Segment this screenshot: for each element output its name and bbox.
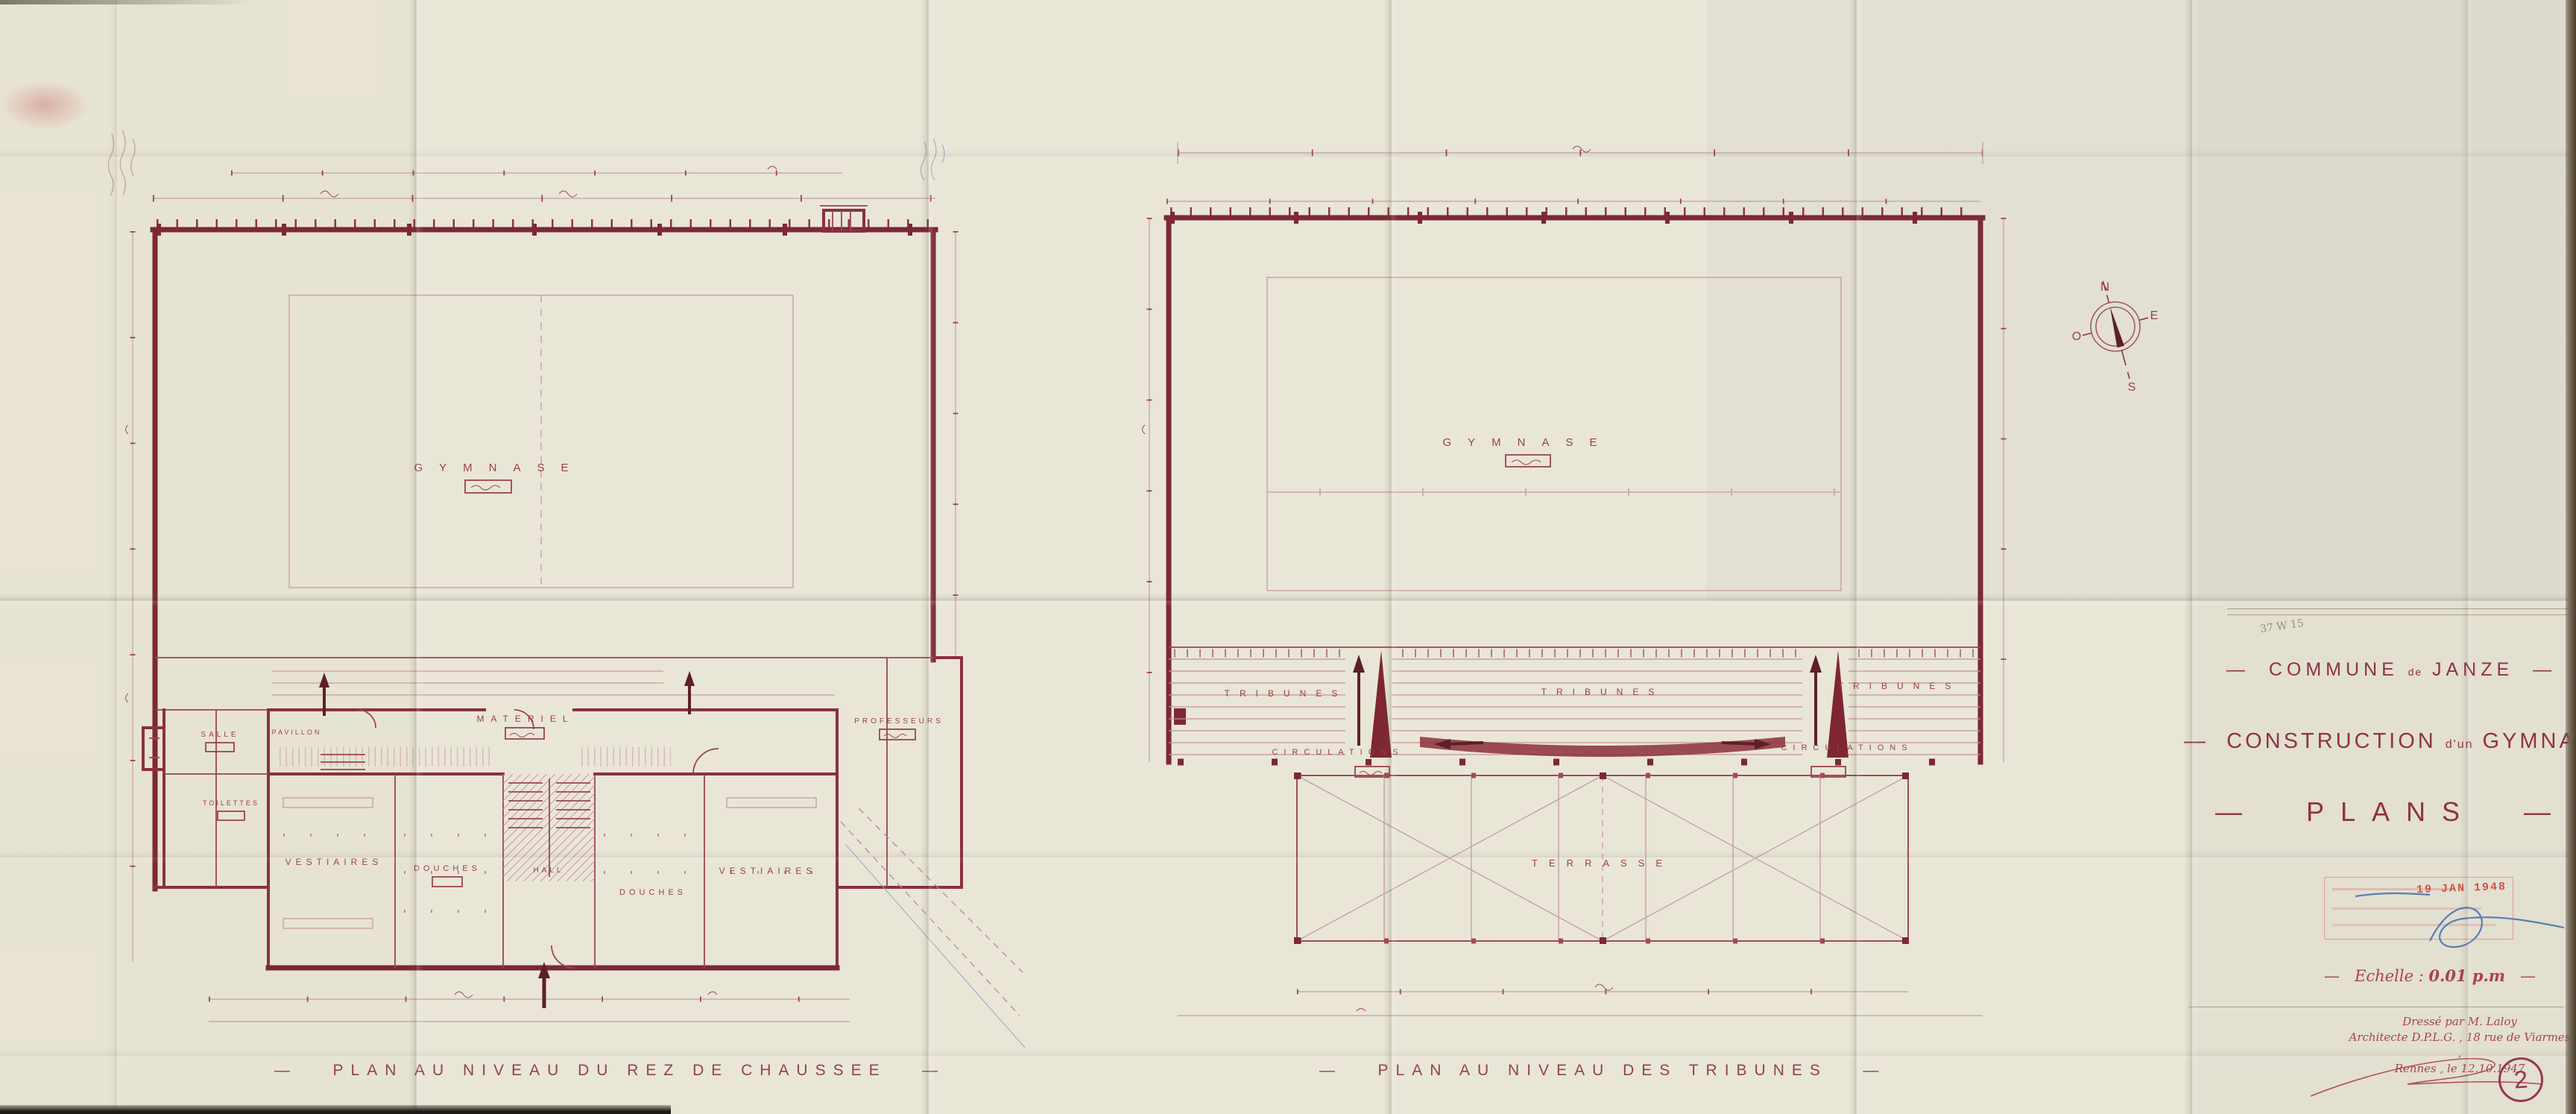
trib-label-tribunes-l: TRIBUNES [1225,688,1348,699]
credit-line-1: Dressé par M. Laloy [2348,1014,2572,1030]
titleblock-sheet-title: — PLANS — [2206,796,2576,828]
trib-label-circulations-r: CIRCULATIONS [1781,743,1913,752]
project-name: GYMNASE [2483,729,2576,753]
caption-dash-left: — [1319,1062,1342,1079]
dash: — [2215,796,2258,827]
rdc-label-salle: SALLE [201,731,239,739]
titleblock-divider [2188,1007,2564,1007]
compass-west-label: O [2072,330,2081,343]
dash: — [2184,729,2209,753]
drawing-sheet: GYMNASE MATERIEL PROFESSEURS VESTIAIRES … [0,0,2576,1114]
compass-rose: N E S O [2050,261,2199,410]
caption-plan-rdc: — PLAN AU NIVEAU DU REZ DE CHAUSSEE — [274,1062,796,1080]
dash: — [2520,967,2536,985]
rdc-label-gymnase: GYMNASE [414,462,584,474]
rdc-note-blue [921,139,944,180]
rdc-label-pavillon: PAVILLON [272,728,322,736]
sheet-title-text: PLANS [2306,796,2476,827]
rdc-exterior-ramp [841,808,1025,1048]
rdc-court [289,295,793,588]
rdc-label-douches-l: DOUCHES [414,864,481,873]
trib-gym-below: GYMNASE [1267,277,1841,591]
project-word: CONSTRUCTION [2226,729,2437,753]
dash: — [2226,659,2250,680]
rdc-label-hall: HALL [533,866,563,875]
rdc-label-vestiaires-l: VESTIAIRES [285,857,383,867]
trib-label-gymnase: GYMNASE [1442,436,1613,449]
caption-dash-right: — [1863,1062,1886,1079]
trib-stairs [1345,649,1849,777]
caption-rdc-text: PLAN AU NIVEAU DU REZ DE CHAUSSEE [333,1062,887,1079]
caption-plan-tribunes: — PLAN AU NIVEAU DES TRIBUNES — [1319,1062,1849,1080]
trib-label-terrasse: TERRASSE [1532,857,1673,869]
trib-terrasse: TERRASSE [1294,772,1909,944]
rdc-dimension-chains [126,166,956,1022]
rdc-label-materiel: MATERIEL [476,714,574,724]
compass-south-label: S [2128,381,2136,394]
caption-tribunes-text: PLAN AU NIVEAU DES TRIBUNES [1378,1062,1828,1079]
archive-reference: 37 W 15 [2259,617,2305,635]
dash: — [2524,796,2567,827]
commune-name: JANZE [2432,659,2513,680]
trib-dimension-chains [1143,142,2004,1016]
scale-value: 0.01 p.m [2428,966,2505,985]
titleblock-project-line: — CONSTRUCTION d'un GYMNASE — [2184,729,2576,754]
blue-signature [2340,880,2576,977]
dash: — [2324,967,2340,985]
ink-stain [0,81,89,130]
trib-label-circulations-l: CIRCULATIONS [1272,748,1404,757]
fold-crease-vertical [2184,0,2199,1114]
caption-dash-right: — [922,1062,945,1079]
titleblock-top-rule [2227,608,2576,615]
rdc-label-toilettes: TOILETTES [203,799,259,807]
table-edge-top-left [0,0,253,4]
sheet-number: 2 [2513,1065,2529,1094]
project-dun: d'un [2446,738,2474,751]
scale-line: — Echelle : 0.01 p.m — [2296,966,2564,985]
commune-word: COMMUNE [2269,659,2399,680]
rdc-label-douches-r: DOUCHES [619,888,686,897]
trib-label-tribunes-c: TRIBUNES [1541,687,1664,697]
table-edge-bottom-left [0,1105,671,1114]
plan-tribunes-drawing: GYMNASE [1133,112,2035,1089]
titleblock-commune-line: — COMMUNE de JANZE — [2206,659,2576,681]
trib-front-edge [1420,737,1785,757]
caption-dash-left: — [274,1062,297,1079]
rdc-label-professeurs: PROFESSEURS [854,717,944,726]
commune-de: de [2408,667,2422,678]
rdc-stair-hall [503,774,595,881]
trib-outer-walls [1167,212,1983,762]
compass-east-label: E [2150,309,2159,322]
scale-label: Echelle : [2355,967,2424,985]
compass-north-label: N [2100,280,2109,294]
trib-label-tribunes-r: TRIBUNES [1838,681,1961,691]
plan-rdc-drawing: GYMNASE MATERIEL PROFESSEURS VESTIAIRES … [97,127,1029,1089]
rdc-label-vestiaires-r: VESTIAIRES [719,866,817,876]
dash: — [2533,659,2556,680]
